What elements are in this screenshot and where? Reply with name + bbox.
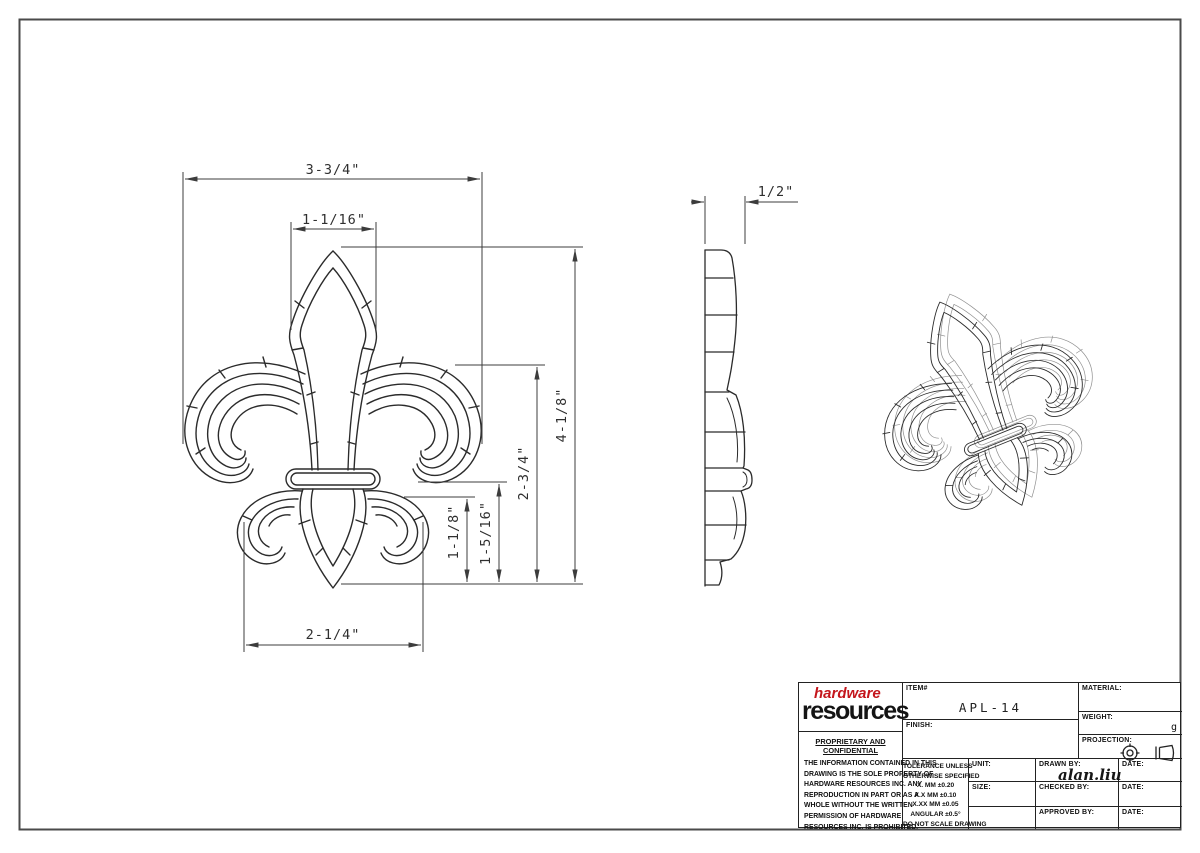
tolerance-line: X. MM ±0.20 — [903, 781, 968, 791]
weight-unit: g — [1171, 722, 1177, 733]
proprietary-line: THE INFORMATION CONTAINED IN THIS — [799, 759, 902, 770]
date-cell: DATE: — [1119, 782, 1182, 807]
front-view — [185, 251, 481, 588]
material-cell: MATERIAL: — [1079, 683, 1182, 712]
tolerance-line: X.XX MM ±0.05 — [903, 800, 968, 810]
item-label: ITEM# — [903, 683, 1078, 692]
proprietary-line: HARDWARE RESOURCES INC. ANY — [799, 780, 902, 791]
proprietary-cell: PROPRIETARY AND CONFIDENTIAL THE INFORMA… — [799, 732, 903, 829]
tolerance-line: TOLERANCE UNLESS — [903, 762, 968, 772]
projection-cell: PROJECTION: — [1079, 735, 1182, 759]
date-label: DATE: — [1119, 759, 1182, 768]
logo-word-resources: resources — [802, 699, 902, 723]
title-block: hardware resources PROPRIETARY AND CONFI… — [798, 682, 1181, 828]
dim-lower-height-inner-label: 1-1/8" — [446, 505, 462, 560]
drawn-by-cell: DRAWN BY: alan.liu — [1036, 759, 1119, 782]
hardware-resources-logo: hardware resources — [799, 683, 902, 723]
approved-by-cell: APPROVED BY: — [1036, 807, 1119, 829]
proprietary-line: DRAWING IS THE SOLE PROPERTY OF — [799, 770, 902, 781]
tolerance-line: X.X MM ±0.10 — [903, 791, 968, 801]
size-label: SIZE: — [969, 782, 1035, 791]
material-label: MATERIAL: — [1079, 683, 1182, 692]
weight-label: WEIGHT: — [1079, 712, 1182, 721]
side-view — [705, 250, 752, 586]
dim-base-width-label: 2-1/4" — [306, 627, 361, 643]
blank-cell — [969, 807, 1036, 829]
dim-depth-label: 1/2" — [758, 184, 795, 200]
size-cell: SIZE: — [969, 782, 1036, 807]
weight-cell: WEIGHT: g — [1079, 712, 1182, 735]
dim-upper-height: 2-3/4" — [455, 365, 545, 582]
dim-lower-height-inner: 1-1/8" — [404, 497, 475, 582]
dim-depth: 1/2" — [691, 184, 798, 244]
tolerance-cell: TOLERANCE UNLESS OTHERWISE SPECIFIED X. … — [903, 759, 969, 829]
dim-upper-height-label: 2-3/4" — [516, 446, 532, 501]
approved-by-label: APPROVED BY: — [1036, 807, 1118, 816]
tolerance-line: OTHERWISE SPECIFIED — [903, 772, 968, 782]
dim-lower-height-outer-label: 1-5/16" — [478, 501, 494, 565]
dim-overall-height: 4-1/8" — [341, 247, 583, 584]
dim-head-width: 1-1/16" — [291, 212, 376, 330]
dim-head-width-label: 1-1/16" — [302, 212, 366, 228]
dim-overall-width-label: 3-3/4" — [306, 162, 361, 178]
checked-by-cell: CHECKED BY: — [1036, 782, 1119, 807]
item-number: APL-14 — [903, 695, 1078, 719]
proprietary-line: RESOURCES INC. IS PROHIBITED. — [799, 823, 902, 834]
finish-cell: FINISH: — [903, 720, 1079, 759]
proprietary-line: REPRODUCTION IN PART OR AS A — [799, 791, 902, 802]
proprietary-heading: PROPRIETARY AND CONFIDENTIAL — [801, 737, 900, 755]
item-cell: ITEM# APL-14 — [903, 683, 1079, 720]
tolerance-line: DO NOT SCALE DRAWING — [903, 820, 968, 830]
dimensions: 3-3/4" 1-1/16" 4-1/8" 2-3/4" 1-5/16" — [183, 162, 798, 652]
date-label: DATE: — [1119, 807, 1182, 816]
date-cell: DATE: — [1119, 759, 1182, 782]
finish-label: FINISH: — [903, 720, 1078, 729]
date-cell: DATE: — [1119, 807, 1182, 829]
unit-cell: UNIT: — [969, 759, 1036, 782]
tolerance-line: ANGULAR ±0.5° — [903, 810, 968, 820]
dim-overall-height-label: 4-1/8" — [554, 388, 570, 443]
dim-overall-width: 3-3/4" — [183, 162, 482, 444]
proprietary-line: WHOLE WITHOUT THE WRITTEN — [799, 801, 902, 812]
unit-label: UNIT: — [969, 759, 1035, 768]
proprietary-line: PERMISSION OF HARDWARE — [799, 812, 902, 823]
logo-cell: hardware resources — [799, 683, 903, 732]
checked-by-label: CHECKED BY: — [1036, 782, 1118, 791]
date-label: DATE: — [1119, 782, 1182, 791]
isometric-view — [844, 255, 1128, 544]
